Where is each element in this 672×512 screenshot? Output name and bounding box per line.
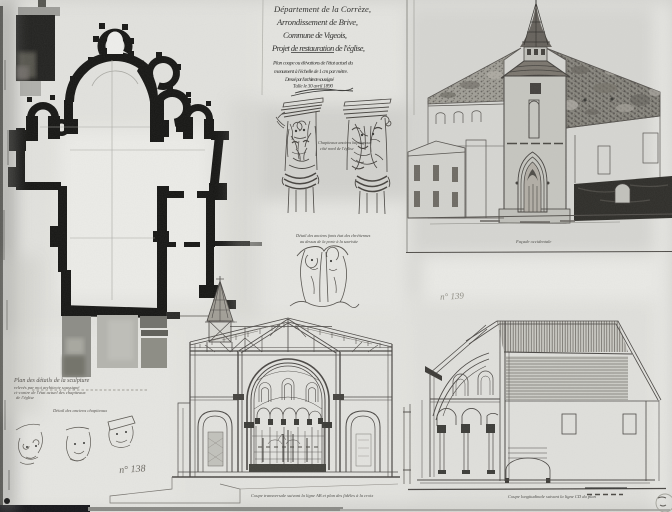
svg-text:de l'église: de l'église bbox=[16, 395, 34, 400]
svg-text:Plan des détails de la sculptu: Plan des détails de la sculpture bbox=[13, 378, 90, 384]
svg-text:Détail des anciens chapiteaux: Détail des anciens chapiteaux bbox=[52, 408, 107, 413]
svg-text:n° 138: n° 138 bbox=[119, 463, 146, 476]
